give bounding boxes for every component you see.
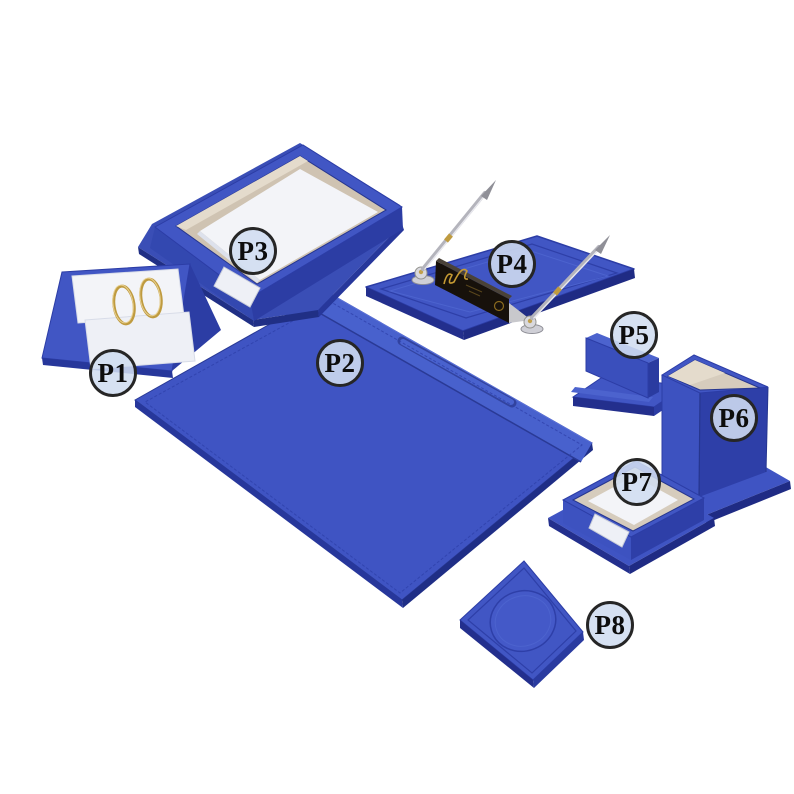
part-label-p7: P7 [613, 458, 661, 506]
desk-set-product-photo: P1 P2 P3 P4 P5 P6 P7 P8 [0, 0, 794, 794]
part-label-p4: P4 [488, 240, 536, 288]
part-label-p3: P3 [229, 227, 277, 275]
part-label-p6: P6 [710, 394, 758, 442]
part-label-p8: P8 [586, 601, 634, 649]
part-label-p1: P1 [89, 349, 137, 397]
desk-set-illustration [0, 0, 794, 794]
part-label-p2: P2 [316, 339, 364, 387]
coaster [460, 561, 584, 688]
part-label-p5: P5 [610, 311, 658, 359]
